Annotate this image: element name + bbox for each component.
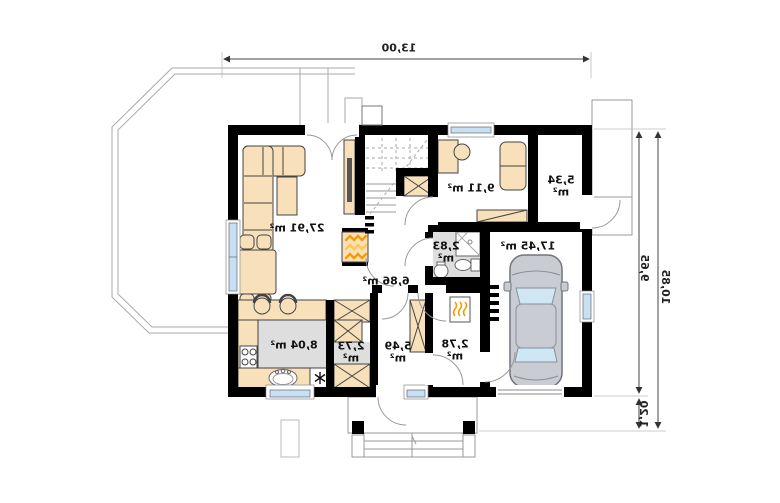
pantry-unit: m² [337, 352, 364, 364]
room-label-storage: 5,34 m² [547, 175, 574, 198]
storage-door-gap [580, 195, 594, 229]
entry-door-gap [376, 385, 406, 399]
dining-chair [240, 235, 254, 249]
vestibule-door-gap [418, 285, 446, 293]
room-label-pantry: 2,73 m² [337, 341, 364, 364]
window [448, 123, 494, 137]
sink-icon [269, 369, 297, 386]
wardrobe-icon [334, 300, 370, 322]
entry-door-arc [378, 397, 406, 425]
room-label-corridor: 5,49 m² [384, 341, 411, 364]
office-door-gap [428, 197, 438, 225]
tv-icon [347, 158, 352, 202]
garage-door [496, 385, 564, 399]
car-rear-window [515, 348, 557, 362]
garage-entry-gap [480, 352, 490, 382]
radiator-icon [490, 285, 499, 321]
room-label-bathroom: 2,83 m² [432, 241, 459, 264]
room-label-vestibule: 2,78 m² [441, 339, 468, 362]
car-roof [516, 304, 556, 348]
floor-plan-drawing [0, 0, 780, 503]
corridor-unit: m² [384, 352, 411, 364]
dimension-width-total: 13,00 [382, 42, 417, 54]
car-mirror [561, 282, 568, 291]
dining-chair [257, 235, 271, 249]
floor-plan-canvas: 27,91 m² 8,04 m² 6,86 m² 9,11 m² 5,34 m²… [0, 0, 780, 503]
room-label-kitchen: 8,04 m² [270, 339, 317, 351]
corridor-door-arc [382, 293, 408, 319]
bathroom-unit: m² [432, 252, 459, 264]
side-canopy [592, 100, 632, 235]
window [580, 291, 594, 322]
window [266, 385, 314, 399]
coffee-table [277, 177, 297, 215]
dimension-porch-depth: 1,20 [637, 400, 649, 427]
terrace-door-gap [305, 123, 359, 137]
car-windshield [516, 288, 556, 304]
storage-unit: m² [547, 186, 574, 198]
room-label-garage: 17,45 m² [501, 240, 556, 252]
porch-columns [352, 421, 475, 434]
car [504, 255, 568, 387]
room-label-hall: 6,86 m² [362, 275, 409, 287]
tv-cabinet [344, 140, 355, 214]
car-mirror [504, 282, 511, 291]
dining-table [236, 250, 276, 294]
dimension-height-main: 9,65 [638, 254, 650, 281]
radiator-icon [365, 216, 374, 234]
vestibule-unit: m² [441, 350, 468, 362]
vestibule-side-gap [425, 353, 433, 385]
stove-icon [240, 346, 257, 368]
fireplace [342, 228, 368, 266]
room-label-office: 9,11 m² [447, 182, 494, 194]
window [226, 220, 240, 294]
terrace-door-arc [307, 135, 332, 160]
dimension-height-total: 10,85 [659, 270, 671, 305]
heater-icon [450, 297, 470, 322]
shower-icon [456, 232, 480, 256]
chimney [362, 106, 382, 125]
window [404, 385, 428, 399]
room-label-living: 27,91 m² [270, 222, 325, 234]
wardrobe-icon [410, 300, 426, 352]
desk-chair [454, 144, 470, 160]
wardrobe-icon [334, 364, 370, 388]
